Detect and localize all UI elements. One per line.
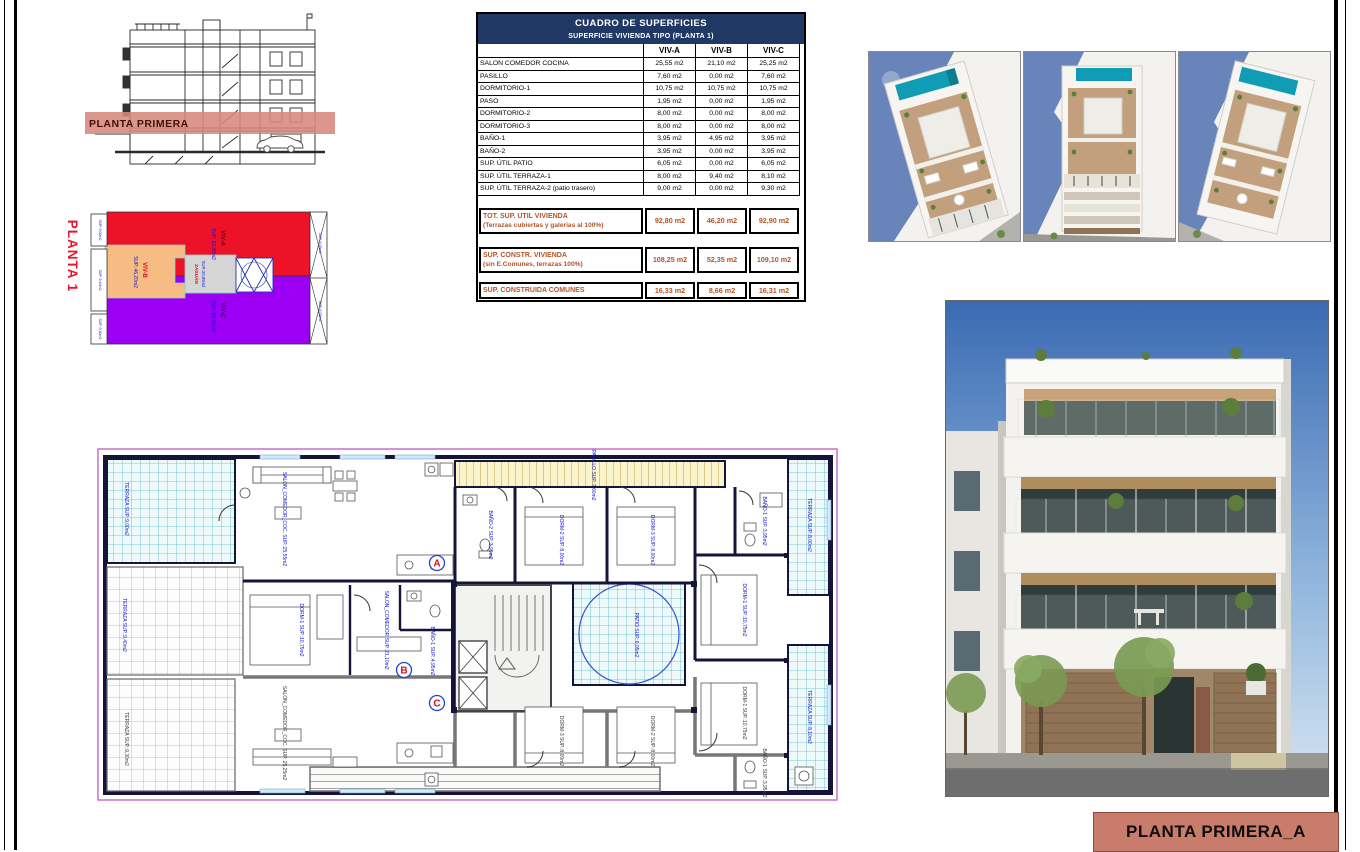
table-row: SUP. ÚTIL TERRAZA-2 (patio trasero)9,00 … xyxy=(478,183,804,196)
viv-a-name: VIV-A xyxy=(219,230,225,246)
stair-core xyxy=(453,585,551,711)
label-terraza-ml: TERRAZA SUP.:9,40m2 xyxy=(121,598,127,652)
label-salon-b: SALON_COMEDOR SUP.:21,10m2 xyxy=(383,590,389,669)
label-dorm1-c: DORM-1 SUP.:10,75m2 xyxy=(741,687,747,740)
building-roofplan xyxy=(1062,66,1142,234)
frame-line-left-inner xyxy=(14,0,17,850)
label-pasillo: PASILLO SUP.:7,60m2 xyxy=(590,450,596,501)
label-dorm1-a: DORM-1 SUP.:10,75m2 xyxy=(741,584,747,637)
roof-balustrade xyxy=(1018,399,1280,437)
label-terraza-br: TERRAZA SUP.:8,10m2 xyxy=(806,690,812,744)
viv-a-sup: SUP.:92,80m2 xyxy=(210,228,216,260)
viv-b-name: VIV-B xyxy=(141,262,147,278)
table-row: DORMITORIO-110,75 m210,75 m210,75 m2 xyxy=(478,83,804,96)
frame-line-left-outer xyxy=(4,0,5,850)
col-viv-b: VIV-B xyxy=(696,44,748,58)
label-dorm1-b: DORM-1 SUP.:10,75m2 xyxy=(298,604,304,657)
terraza-a-label: SUP.:9,00m2 xyxy=(98,220,102,241)
aerial-render-1 xyxy=(868,51,1021,242)
label-dorm2-a: DORM-2 SUP.:8,00m2 xyxy=(558,515,564,565)
drawing-sheet: { "colors": { "viv_a_red": "#ee1228", "v… xyxy=(0,0,1360,850)
marker-b: B xyxy=(400,666,407,677)
gallery-strip-bottom xyxy=(310,767,660,791)
table-total-util: TOT. SUP. UTIL VIVIENDA(Terrazas cubiert… xyxy=(478,207,804,235)
label-banyo2-a: BAÑO-2 SUP.:3,95m2 xyxy=(487,510,494,559)
table-row: PASO1,95 m20,00 m21,95 m2 xyxy=(478,96,804,109)
floor-plan: A B C TERRAZA SUP.:9,00m2 SALON_COMEDOR_… xyxy=(95,445,840,805)
label-terraza-tr: TERRAZA SUP.:8,00m2 xyxy=(806,498,812,552)
viv-c-sup: SUP.:92,90m2 xyxy=(210,300,216,332)
zaguan-name: ZAGUÁN xyxy=(194,264,200,284)
schematic-title: PLANTA 1 xyxy=(65,220,80,293)
terraza-b-label: SUP.:9,40m2 xyxy=(98,270,102,291)
label-banyo1-c: BAÑO-1 SUP.:3,95m2 xyxy=(761,748,768,797)
col-viv-c: VIV-C xyxy=(748,44,800,58)
table-total-comunes: SUP. CONSTRUIDA COMUNES 16,33 m2 8,66 m2… xyxy=(478,281,804,300)
table-row: BAÑO-23,95 m20,00 m23,95 m2 xyxy=(478,146,804,159)
table-row: PASILLO7,60 m20,00 m27,60 m2 xyxy=(478,71,804,84)
table-row: BAÑO-13,95 m24,95 m23,95 m2 xyxy=(478,133,804,146)
table-subtitle: SUPERFICIE VIVIENDA TIPO (PLANTA 1) xyxy=(478,32,804,44)
frame-line-right-outer xyxy=(1345,0,1346,850)
label-dorm2-c: DORM-2 SUP.:8,00m2 xyxy=(649,716,655,766)
table-row: SALON COMEDOR COCINA25,55 m221,10 m225,2… xyxy=(478,58,804,71)
marker-c: C xyxy=(433,699,440,710)
aerial-render-3 xyxy=(1178,51,1331,242)
terraza-c-label: SUP.:9,30m2 xyxy=(98,319,102,340)
label-salon-a: SALON_COMEDOR_COC. SUP.:25,55m2 xyxy=(281,472,287,567)
unit-schematic: PLANTA 1 VIV-A SUP.:92,80m2 VIV-B SUP.:4… xyxy=(55,198,347,360)
label-patio: PATIO SUP.:6,05m2 xyxy=(633,613,639,658)
schematic-blocks xyxy=(91,212,327,344)
viv-c-name: VIV-C xyxy=(219,302,225,318)
patio-a-label: SUP.:6,05m2 xyxy=(318,233,322,254)
label-banyo1-a: BAÑO-1 SUP.:3,95m2 xyxy=(761,496,768,545)
label-dorm3-c: DORM-3 SUP.:8,00m2 xyxy=(558,716,564,766)
zaguan-sup: SUP.:20,85m2 xyxy=(201,261,206,288)
zaguan-block xyxy=(185,255,236,293)
building-section-drawing: PLANTA PRIMERA xyxy=(85,12,335,180)
table-row: DORMITORIO-28,00 m20,00 m28,00 m2 xyxy=(478,108,804,121)
aerial-render-2 xyxy=(1023,51,1176,242)
label-salon-c: SALON_COMEDOR_COC. SUP.:25,25m2 xyxy=(281,686,287,781)
table-title: CUADRO DE SUPERFICIES xyxy=(478,14,804,32)
table-column-header: VIV-A VIV-B VIV-C xyxy=(478,44,804,58)
viv-b-sup: SUP.:46,20m2 xyxy=(132,256,138,288)
table-row: DORMITORIO-38,00 m20,00 m28,00 m2 xyxy=(478,121,804,134)
table-row: SUP. ÚTIL PATIO6,05 m20,00 m26,05 m2 xyxy=(478,158,804,171)
label-banyo1-b: BAÑO-1 SUP.:4,95m2 xyxy=(429,626,436,675)
gallery-strip-top xyxy=(455,461,725,487)
frame-line-right-inner xyxy=(1334,0,1338,850)
sheet-title: PLANTA PRIMERA_A xyxy=(1126,822,1306,842)
table-row: SUP. ÚTIL TERRAZA-18,00 m29,40 m28,10 m2 xyxy=(478,171,804,184)
label-dorm3-a: DORM-3 SUP.:8,00m2 xyxy=(649,515,655,565)
marker-a: A xyxy=(433,559,440,570)
facade-render xyxy=(945,300,1329,797)
section-linework xyxy=(95,14,325,164)
section-band-label: PLANTA PRIMERA xyxy=(89,118,189,130)
stair-core-block xyxy=(236,258,273,292)
surfaces-table: CUADRO DE SUPERFICIES SUPERFICIE VIVIEND… xyxy=(476,12,806,302)
street xyxy=(946,753,1328,796)
patio-c-label: SUP.:6,05m2 xyxy=(318,301,322,322)
title-block: PLANTA PRIMERA_A xyxy=(1093,812,1339,852)
label-terraza-tl: TERRAZA SUP.:9,00m2 xyxy=(123,482,129,536)
label-terraza-bl: TERRAZA SUP.:9,30m2 xyxy=(123,712,129,766)
table-total-construida: SUP. CONSTR. VIVIENDA(sin E.Comunes, ter… xyxy=(478,246,804,274)
col-viv-a: VIV-A xyxy=(644,44,696,58)
